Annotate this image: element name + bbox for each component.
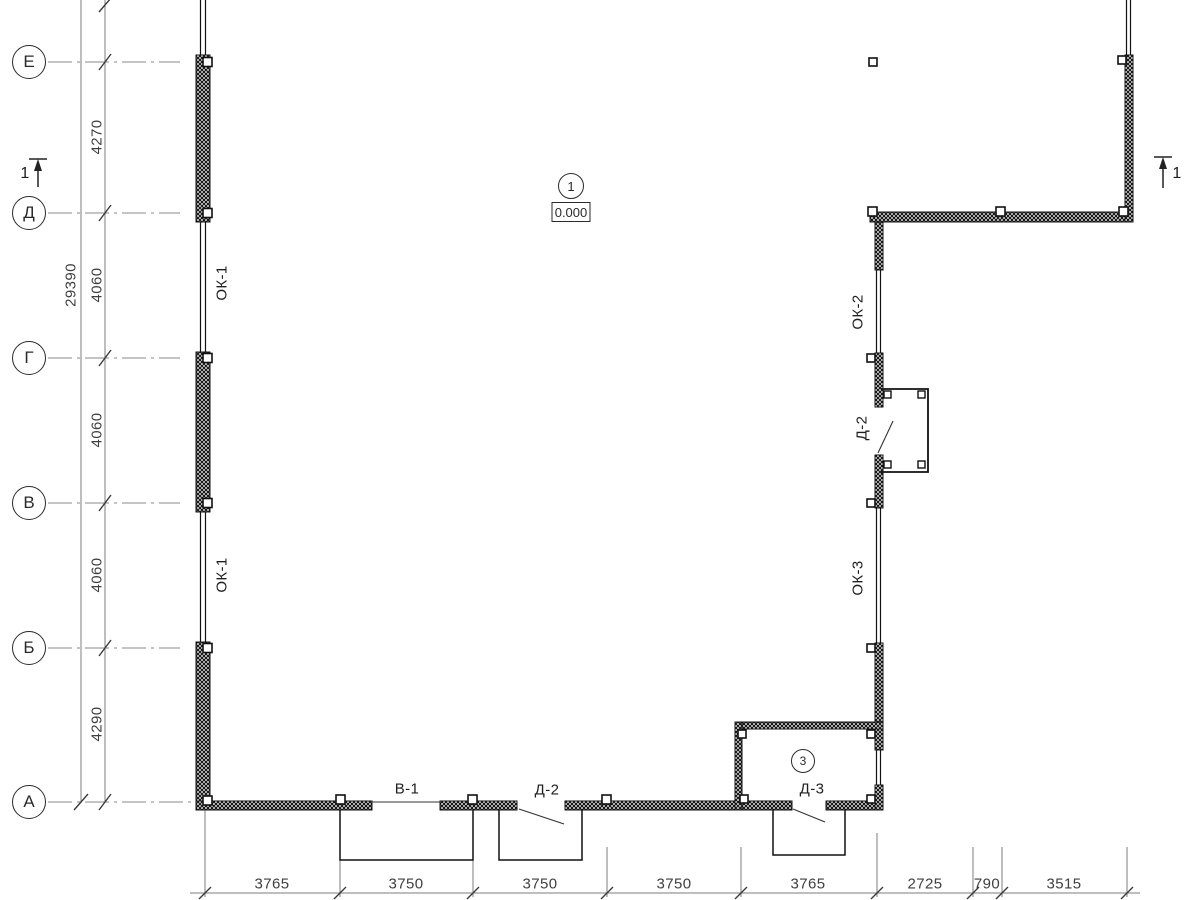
window-label-ok1-lower: ОК-1 xyxy=(214,557,231,592)
axis-label-a: А xyxy=(23,792,34,812)
window-lines xyxy=(201,0,1131,785)
dim-vertical-4060-3: 4060 xyxy=(89,558,106,593)
door-label-d2-bottom: Д-2 xyxy=(535,782,560,799)
axis-bubble-v: В xyxy=(12,486,46,520)
window-label-ok3: ОК-3 xyxy=(850,560,867,595)
dim-vertical-4060-1: 4060 xyxy=(89,268,106,303)
axis-label-g: Г xyxy=(24,348,33,368)
node-marker-1: 1 xyxy=(558,173,584,199)
node-marker-3: 3 xyxy=(791,749,815,773)
dimension-ticks xyxy=(74,0,1133,899)
floor-plan-drawing: Е Д Г В Б А 4270 4060 4060 4060 4290 293… xyxy=(0,0,1200,900)
dim-bottom-3750-2: 3750 xyxy=(523,876,558,893)
dim-bottom-2725: 2725 xyxy=(908,876,943,893)
walls xyxy=(196,55,1133,810)
node-marker-3-label: 3 xyxy=(800,754,807,768)
dim-vertical-4290: 4290 xyxy=(89,707,106,742)
dim-bottom-3765-1: 3765 xyxy=(255,876,290,893)
dim-vertical-4060-2: 4060 xyxy=(89,413,106,448)
axis-bubble-g: Г xyxy=(12,341,46,375)
column-markers xyxy=(203,56,1128,805)
dim-bottom-3515: 3515 xyxy=(1047,876,1082,893)
axis-bubble-d: Д xyxy=(12,196,46,230)
door-label-d2-side: Д-2 xyxy=(854,416,871,441)
section-mark-left xyxy=(29,159,47,187)
section-mark-right xyxy=(1154,157,1172,188)
window-label-ok2: ОК-2 xyxy=(850,294,867,329)
dim-vertical-4270: 4270 xyxy=(89,120,106,155)
axis-label-b: Б xyxy=(23,638,34,658)
axis-bubble-b: Б xyxy=(12,631,46,665)
dim-bottom-790: 790 xyxy=(974,876,1000,893)
axis-bubble-a: А xyxy=(12,785,46,819)
door-leaf-lines xyxy=(372,421,893,824)
window-label-ok1-upper: ОК-1 xyxy=(214,265,231,300)
dim-bottom-3750-3: 3750 xyxy=(657,876,692,893)
door-label-v1: В-1 xyxy=(395,781,420,798)
axis-grid-lines xyxy=(48,62,195,802)
axis-label-v: В xyxy=(23,493,34,513)
dim-bottom-3765-2: 3765 xyxy=(791,876,826,893)
door-label-d3: Д-3 xyxy=(800,781,825,798)
dim-bottom-3750-1: 3750 xyxy=(389,876,424,893)
axis-label-e: Е xyxy=(23,52,34,72)
elevation-value: 0.000 xyxy=(555,205,588,220)
dim-vertical-overall: 29390 xyxy=(63,263,80,307)
section-number-right: 1 xyxy=(1172,165,1181,183)
elevation-box: 0.000 xyxy=(552,202,591,222)
axis-label-d: Д xyxy=(23,203,35,223)
plan-linework xyxy=(0,0,1200,900)
node-marker-1-label: 1 xyxy=(567,179,574,194)
axis-bubble-e: Е xyxy=(12,45,46,79)
section-number-left: 1 xyxy=(20,165,29,183)
entrance-porches xyxy=(340,810,845,860)
